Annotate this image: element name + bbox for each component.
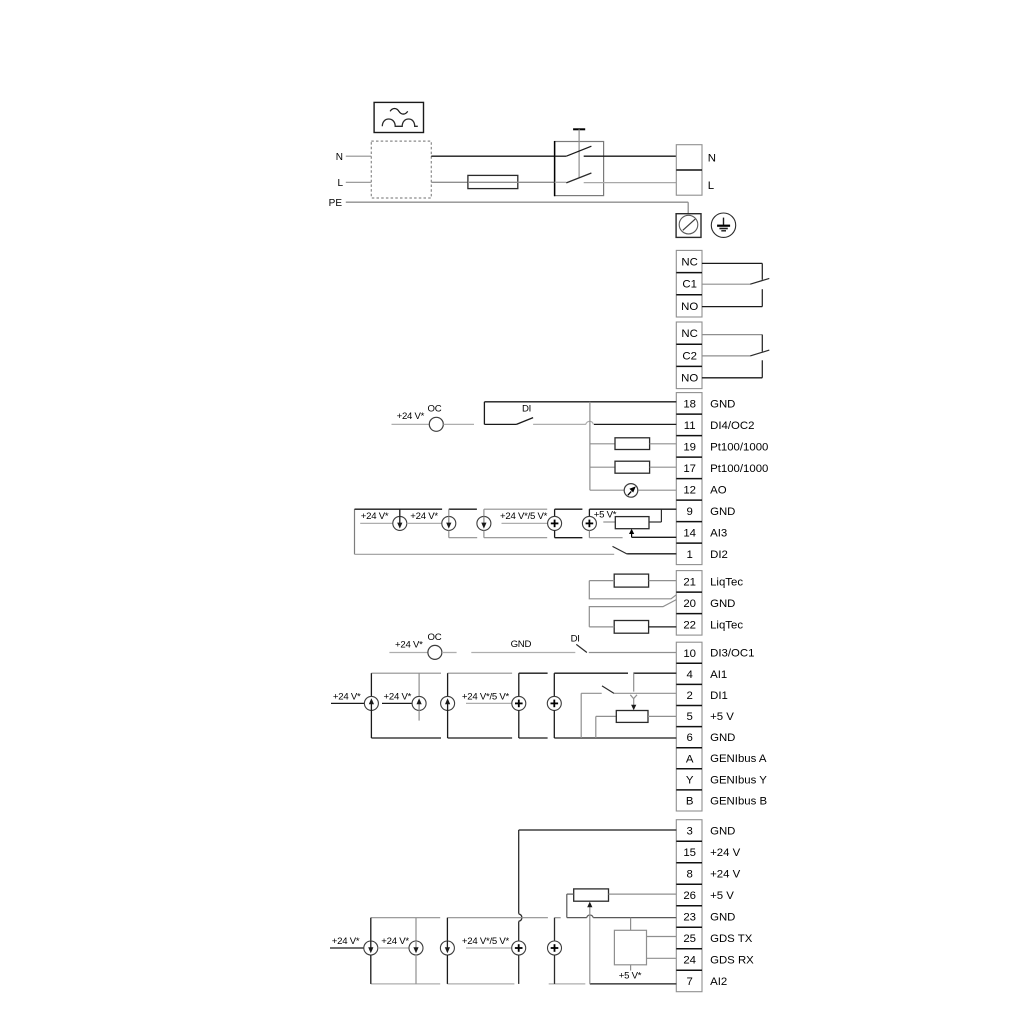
svg-text:3: 3 [686, 825, 692, 837]
svg-text:NC: NC [681, 257, 697, 269]
svg-text:GENIbus A: GENIbus A [710, 753, 767, 765]
svg-text:N: N [336, 152, 343, 163]
svg-text:+5 V*: +5 V* [619, 970, 642, 981]
svg-text:9: 9 [686, 506, 692, 518]
svg-text:DI2: DI2 [710, 549, 728, 561]
svg-text:+24 V*/5 V*: +24 V*/5 V* [462, 692, 510, 703]
svg-text:GND: GND [710, 598, 735, 610]
svg-text:22: 22 [683, 619, 696, 631]
svg-text:C2: C2 [682, 350, 697, 362]
svg-text:15: 15 [683, 847, 696, 859]
svg-text:GND: GND [710, 732, 735, 744]
svg-text:GND: GND [710, 398, 735, 410]
svg-text:2: 2 [686, 690, 692, 702]
svg-text:AI3: AI3 [710, 527, 727, 539]
svg-text:GENIbus B: GENIbus B [710, 795, 767, 807]
svg-text:21: 21 [683, 576, 696, 588]
svg-text:NC: NC [681, 328, 697, 340]
svg-text:L: L [708, 180, 714, 192]
svg-text:+24 V*: +24 V* [332, 936, 360, 947]
svg-text:AI2: AI2 [710, 976, 727, 988]
svg-text:+24 V*: +24 V* [397, 411, 425, 422]
svg-text:LiqTec: LiqTec [710, 619, 743, 631]
svg-text:+24 V*: +24 V* [361, 511, 389, 522]
svg-text:5: 5 [686, 711, 692, 723]
svg-text:24: 24 [683, 954, 696, 966]
svg-text:GND: GND [710, 506, 735, 518]
svg-text:N: N [708, 152, 716, 164]
svg-text:+24 V: +24 V [710, 847, 740, 859]
svg-text:AI1: AI1 [710, 669, 727, 681]
svg-text:+24 V*: +24 V* [410, 511, 438, 522]
svg-text:1: 1 [686, 549, 692, 561]
svg-text:+5 V: +5 V [710, 711, 734, 723]
svg-text:19: 19 [683, 441, 696, 453]
svg-text:GND: GND [511, 639, 532, 650]
svg-text:DI4/OC2: DI4/OC2 [710, 420, 754, 432]
svg-text:+24 V*/5 V*: +24 V*/5 V* [462, 936, 510, 947]
svg-text:23: 23 [683, 911, 696, 923]
svg-text:17: 17 [683, 463, 696, 475]
svg-text:GND: GND [710, 825, 735, 837]
svg-text:12: 12 [683, 484, 696, 496]
svg-text:OC: OC [428, 404, 442, 415]
svg-text:GENIbus Y: GENIbus Y [710, 774, 767, 786]
svg-text:10: 10 [683, 648, 696, 660]
svg-text:7: 7 [686, 976, 692, 988]
svg-text:11: 11 [684, 420, 696, 432]
svg-text:PE: PE [329, 198, 343, 209]
svg-text:Pt100/1000: Pt100/1000 [710, 441, 768, 453]
svg-text:4: 4 [686, 669, 692, 681]
svg-text:20: 20 [683, 598, 696, 610]
svg-text:+24 V*: +24 V* [381, 936, 409, 947]
svg-text:L: L [337, 178, 343, 189]
svg-text:GDS RX: GDS RX [710, 954, 754, 966]
svg-text:C1: C1 [682, 279, 697, 291]
svg-text:+24 V*: +24 V* [384, 692, 412, 703]
svg-text:DI: DI [571, 633, 580, 644]
svg-text:GDS TX: GDS TX [710, 933, 753, 945]
svg-text:DI: DI [522, 404, 531, 415]
svg-text:26: 26 [683, 890, 696, 902]
svg-text:6: 6 [686, 732, 692, 744]
svg-text:B: B [686, 795, 694, 807]
svg-text:LiqTec: LiqTec [710, 576, 743, 588]
svg-text:+24 V*: +24 V* [395, 640, 423, 651]
svg-text:+24 V*/5 V*: +24 V*/5 V* [500, 511, 548, 522]
svg-text:GND: GND [710, 911, 735, 923]
svg-text:+5 V: +5 V [710, 890, 734, 902]
svg-text:8: 8 [686, 868, 692, 880]
svg-text:DI1: DI1 [710, 690, 728, 702]
svg-text:+24 V: +24 V [710, 868, 740, 880]
svg-text:14: 14 [683, 527, 696, 539]
svg-text:Pt100/1000: Pt100/1000 [710, 463, 768, 475]
svg-text:DI3/OC1: DI3/OC1 [710, 648, 754, 660]
svg-text:NO: NO [681, 373, 698, 385]
svg-text:+24 V*: +24 V* [333, 692, 361, 703]
svg-text:18: 18 [683, 398, 696, 410]
svg-text:NO: NO [681, 301, 698, 313]
svg-text:+5 V*: +5 V* [594, 510, 617, 521]
svg-text:A: A [686, 753, 694, 765]
svg-text:25: 25 [683, 933, 696, 945]
svg-text:OC: OC [428, 632, 442, 643]
svg-text:AO: AO [710, 484, 727, 496]
svg-text:Y: Y [686, 774, 694, 786]
